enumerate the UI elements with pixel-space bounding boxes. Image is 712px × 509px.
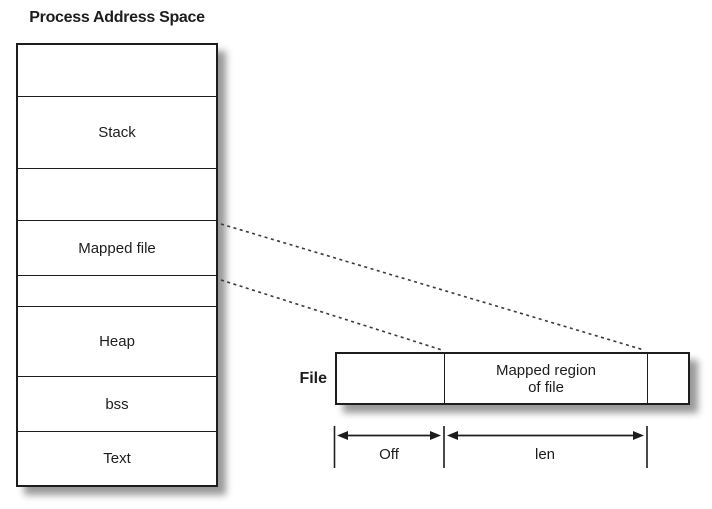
- file-label: File: [281, 352, 327, 405]
- segment-bss: bss: [18, 376, 216, 431]
- segment-empty-2: [18, 168, 216, 220]
- len-dimension-label: len: [535, 446, 555, 463]
- segment-text: Text: [18, 431, 216, 485]
- segment-label: Stack: [98, 124, 136, 141]
- segment-empty-3: [18, 275, 216, 306]
- len-arrowhead-left-icon: [447, 431, 458, 440]
- file-region-offset: [337, 354, 444, 403]
- segment-label: bss: [105, 396, 128, 413]
- file-region-tail: [647, 354, 688, 403]
- segment-heap: Heap: [18, 306, 216, 376]
- segment-stack: Stack: [18, 96, 216, 168]
- segment-label: Mapped file: [78, 240, 156, 257]
- dotted-connector-top: [221, 224, 644, 350]
- segment-empty-top: [18, 45, 216, 96]
- off-arrowhead-right-icon: [430, 431, 441, 440]
- segment-label: Heap: [99, 333, 135, 350]
- off-arrowhead-left-icon: [337, 431, 348, 440]
- diagram-canvas: Process Address Space Stack Mapped file …: [0, 0, 712, 509]
- segment-label: Text: [103, 450, 131, 467]
- file-region-label-line2: of file: [528, 379, 564, 396]
- file-region-mapped: Mapped region of file: [444, 354, 647, 403]
- diagram-title: Process Address Space: [16, 9, 218, 27]
- file-box: Mapped region of file: [335, 352, 690, 405]
- process-address-space-box: Stack Mapped file Heap bss Text: [16, 43, 218, 487]
- dotted-connector-bottom: [221, 280, 442, 350]
- segment-mapped-file: Mapped file: [18, 220, 216, 275]
- len-arrowhead-right-icon: [633, 431, 644, 440]
- off-dimension-label: Off: [379, 446, 399, 463]
- file-region-label-line1: Mapped region: [496, 362, 596, 379]
